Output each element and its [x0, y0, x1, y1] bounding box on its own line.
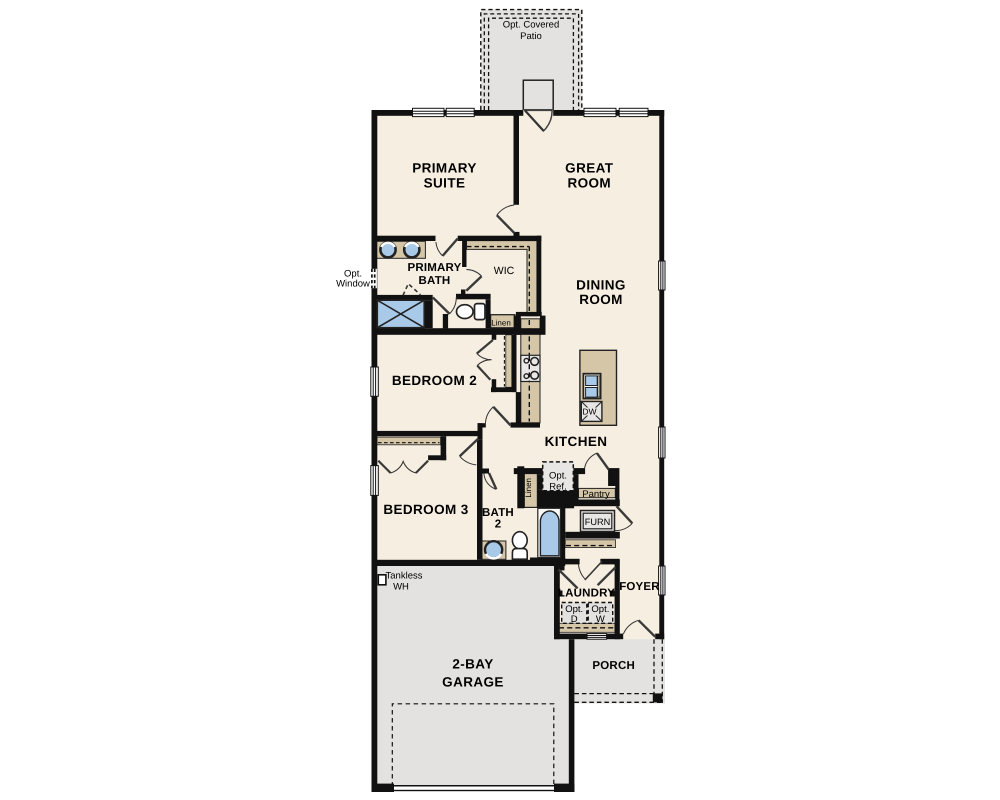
- svg-text:Linen: Linen: [491, 318, 511, 327]
- svg-text:PORCH: PORCH: [592, 660, 635, 672]
- svg-text:Tankless: Tankless: [386, 571, 423, 582]
- svg-text:Patio: Patio: [520, 31, 542, 42]
- svg-text:Ref.: Ref.: [549, 481, 566, 492]
- svg-text:FURN: FURN: [585, 517, 611, 527]
- svg-text:LAUNDRY: LAUNDRY: [558, 588, 615, 600]
- svg-text:WH: WH: [393, 582, 409, 593]
- svg-text:Opt. Covered: Opt. Covered: [503, 20, 560, 31]
- svg-text:W: W: [596, 614, 605, 625]
- svg-text:SUITE: SUITE: [424, 175, 466, 190]
- svg-text:WIC: WIC: [494, 265, 515, 277]
- svg-text:DW: DW: [582, 407, 596, 417]
- svg-text:FOYER: FOYER: [619, 581, 660, 593]
- svg-text:BATH: BATH: [419, 275, 451, 287]
- svg-text:Opt.: Opt.: [549, 471, 567, 482]
- svg-text:BATH: BATH: [482, 507, 514, 519]
- svg-text:DINING: DINING: [576, 278, 626, 293]
- svg-text:BEDROOM 2: BEDROOM 2: [392, 373, 477, 388]
- svg-text:PRIMARY: PRIMARY: [407, 262, 461, 274]
- svg-text:GARAGE: GARAGE: [442, 675, 504, 690]
- svg-text:2: 2: [495, 519, 502, 531]
- svg-text:GREAT: GREAT: [565, 160, 614, 175]
- svg-text:PRIMARY: PRIMARY: [412, 160, 477, 175]
- svg-text:Pantry: Pantry: [582, 489, 610, 500]
- svg-text:2-BAY: 2-BAY: [452, 657, 493, 672]
- svg-text:Window: Window: [336, 278, 370, 289]
- svg-text:ROOM: ROOM: [579, 292, 623, 307]
- svg-text:BEDROOM 3: BEDROOM 3: [383, 502, 468, 517]
- svg-text:D: D: [571, 614, 578, 625]
- svg-text:Linen: Linen: [524, 478, 533, 498]
- svg-text:ROOM: ROOM: [567, 175, 611, 190]
- svg-text:KITCHEN: KITCHEN: [545, 434, 608, 449]
